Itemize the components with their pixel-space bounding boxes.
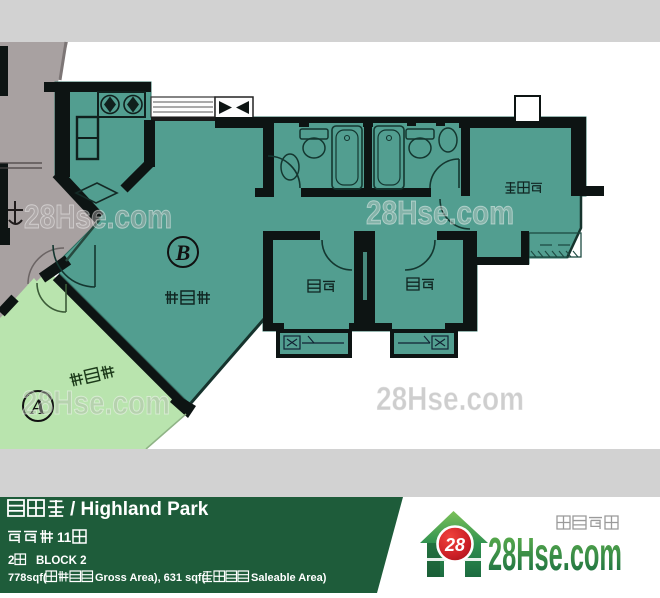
svg-text:/ Highland Park: / Highland Park [70, 499, 209, 520]
svg-text:Saleable Area): Saleable Area) [251, 572, 327, 584]
svg-text:BLOCK 2: BLOCK 2 [36, 555, 86, 567]
svg-text:B: B [175, 240, 191, 265]
svg-text:28Hse.com: 28Hse.com [366, 194, 514, 231]
svg-text:28Hse.com: 28Hse.com [488, 528, 622, 580]
svg-text:778sqf(: 778sqf( [8, 572, 47, 584]
svg-text:28Hse.com: 28Hse.com [22, 384, 170, 421]
svg-text:28Hse.com: 28Hse.com [376, 380, 524, 417]
svg-text:2: 2 [8, 555, 14, 567]
svg-text:11: 11 [57, 530, 72, 545]
svg-text:Gross Area), 631 sqf(: Gross Area), 631 sqf( [95, 572, 206, 584]
svg-text:28Hse.com: 28Hse.com [24, 198, 172, 235]
svg-text:28: 28 [444, 535, 465, 555]
